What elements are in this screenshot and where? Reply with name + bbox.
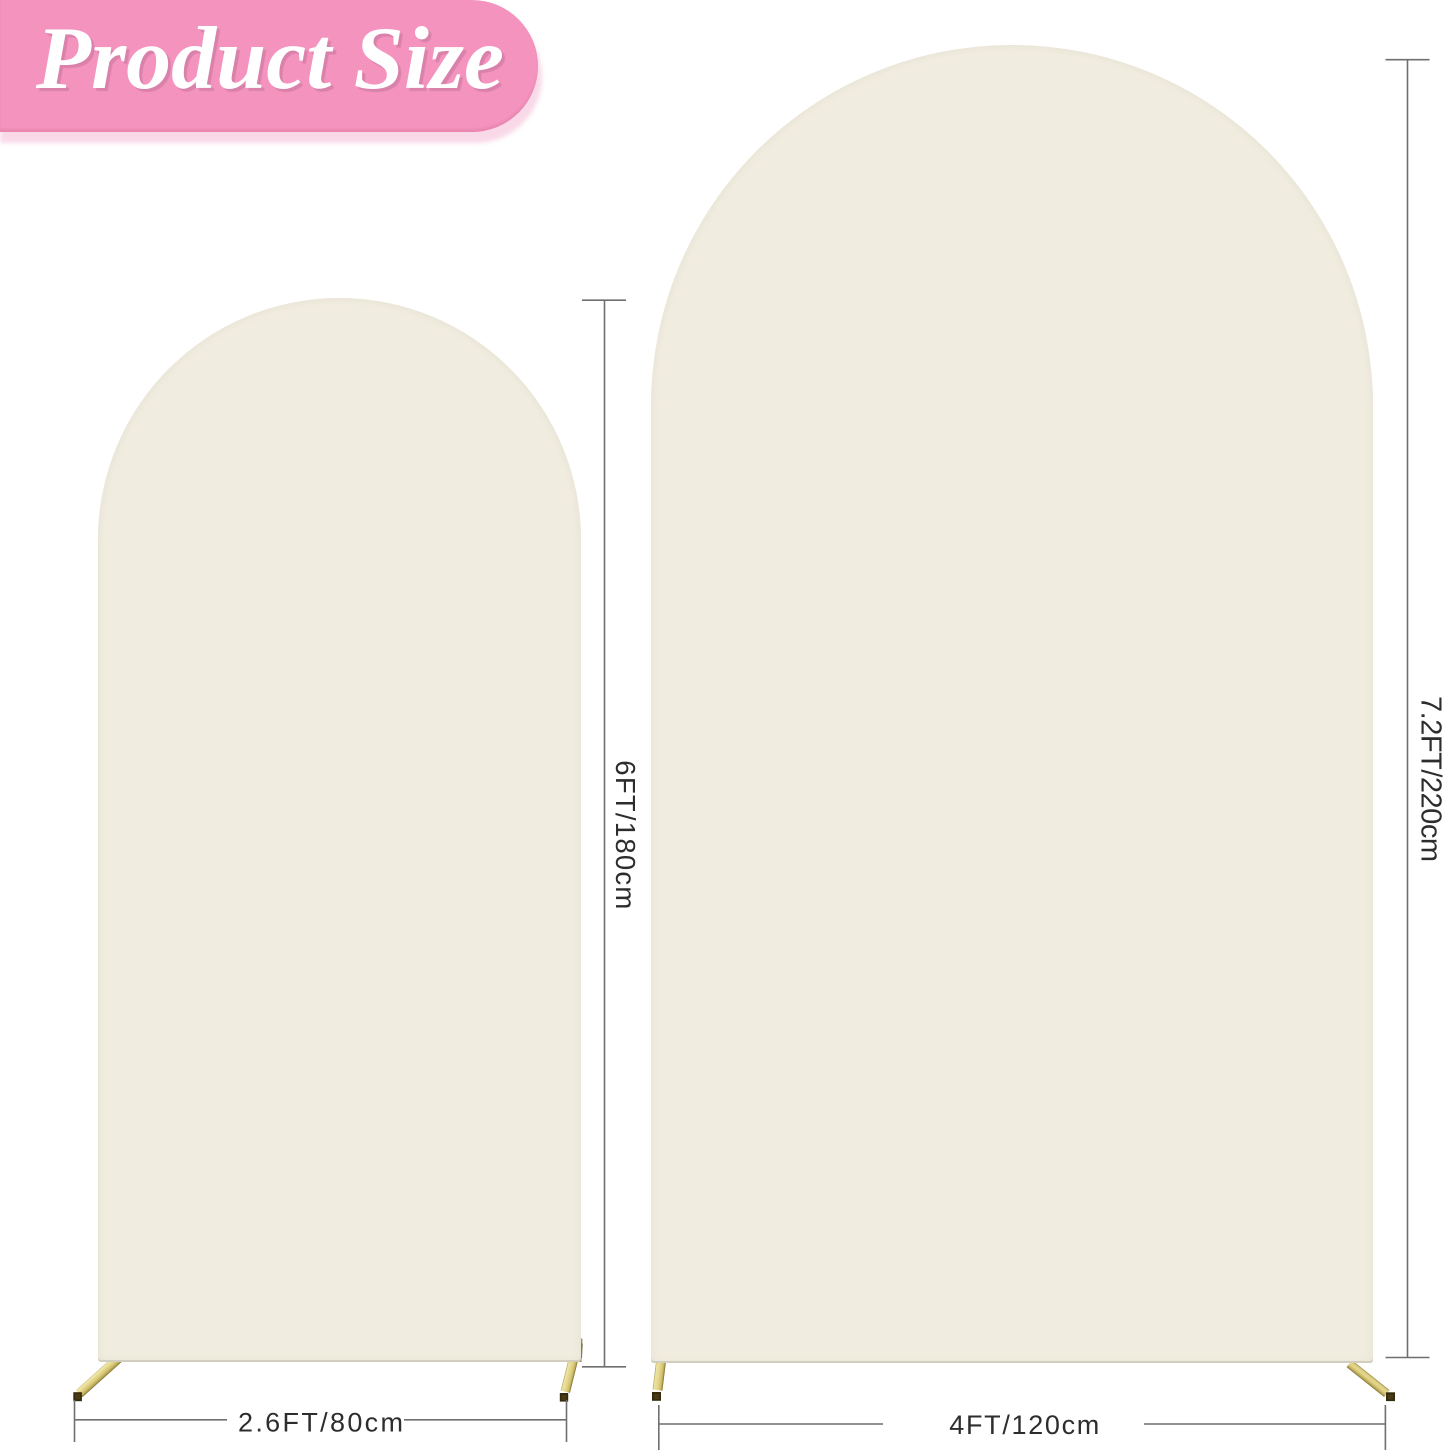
- svg-text:7.2FT/220cm: 7.2FT/220cm: [1415, 696, 1445, 862]
- svg-text:2.6FT/80cm: 2.6FT/80cm: [238, 1408, 403, 1438]
- svg-text:6FT/180cm: 6FT/180cm: [610, 760, 641, 909]
- svg-text:4FT/120cm: 4FT/120cm: [949, 1410, 1099, 1440]
